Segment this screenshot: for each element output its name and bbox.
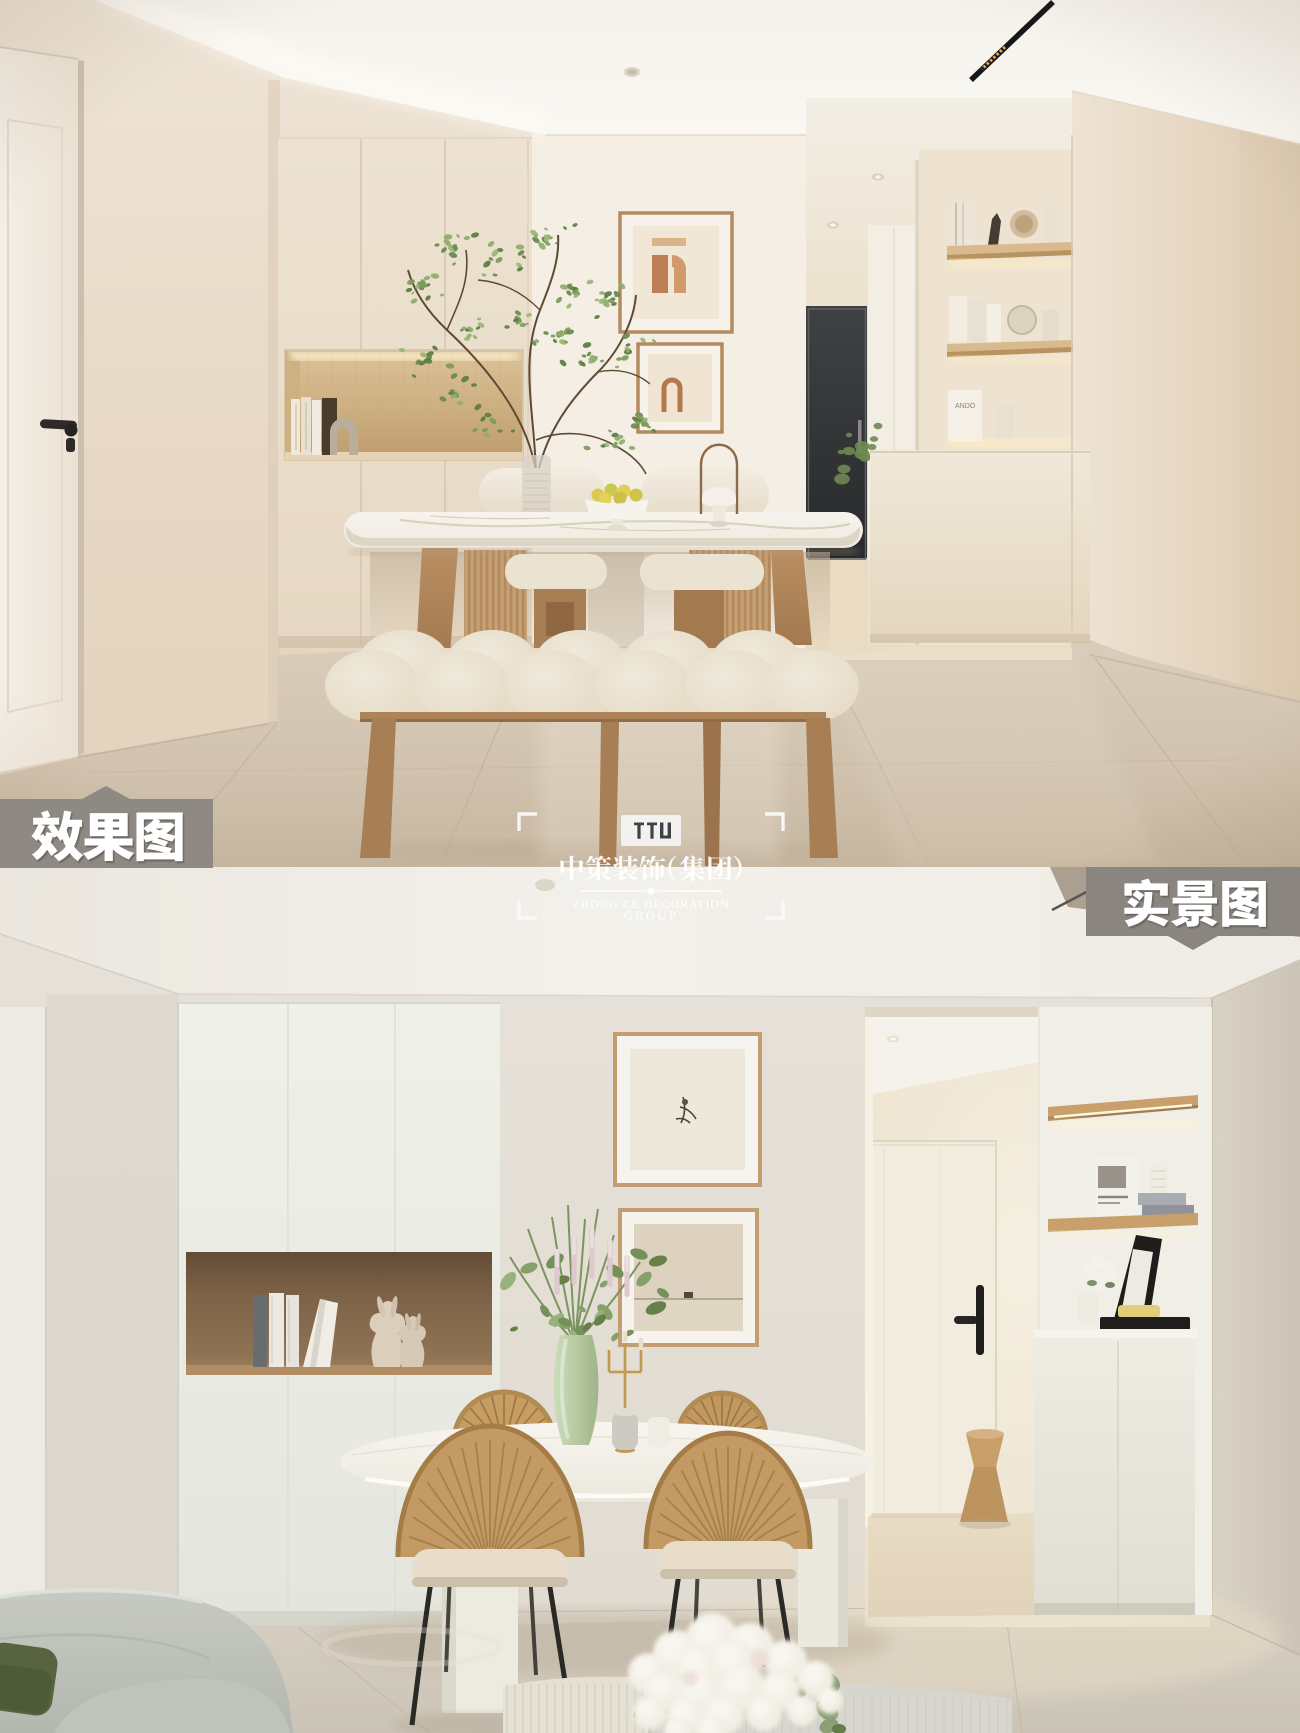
svg-text:GROUP: GROUP	[624, 909, 678, 923]
